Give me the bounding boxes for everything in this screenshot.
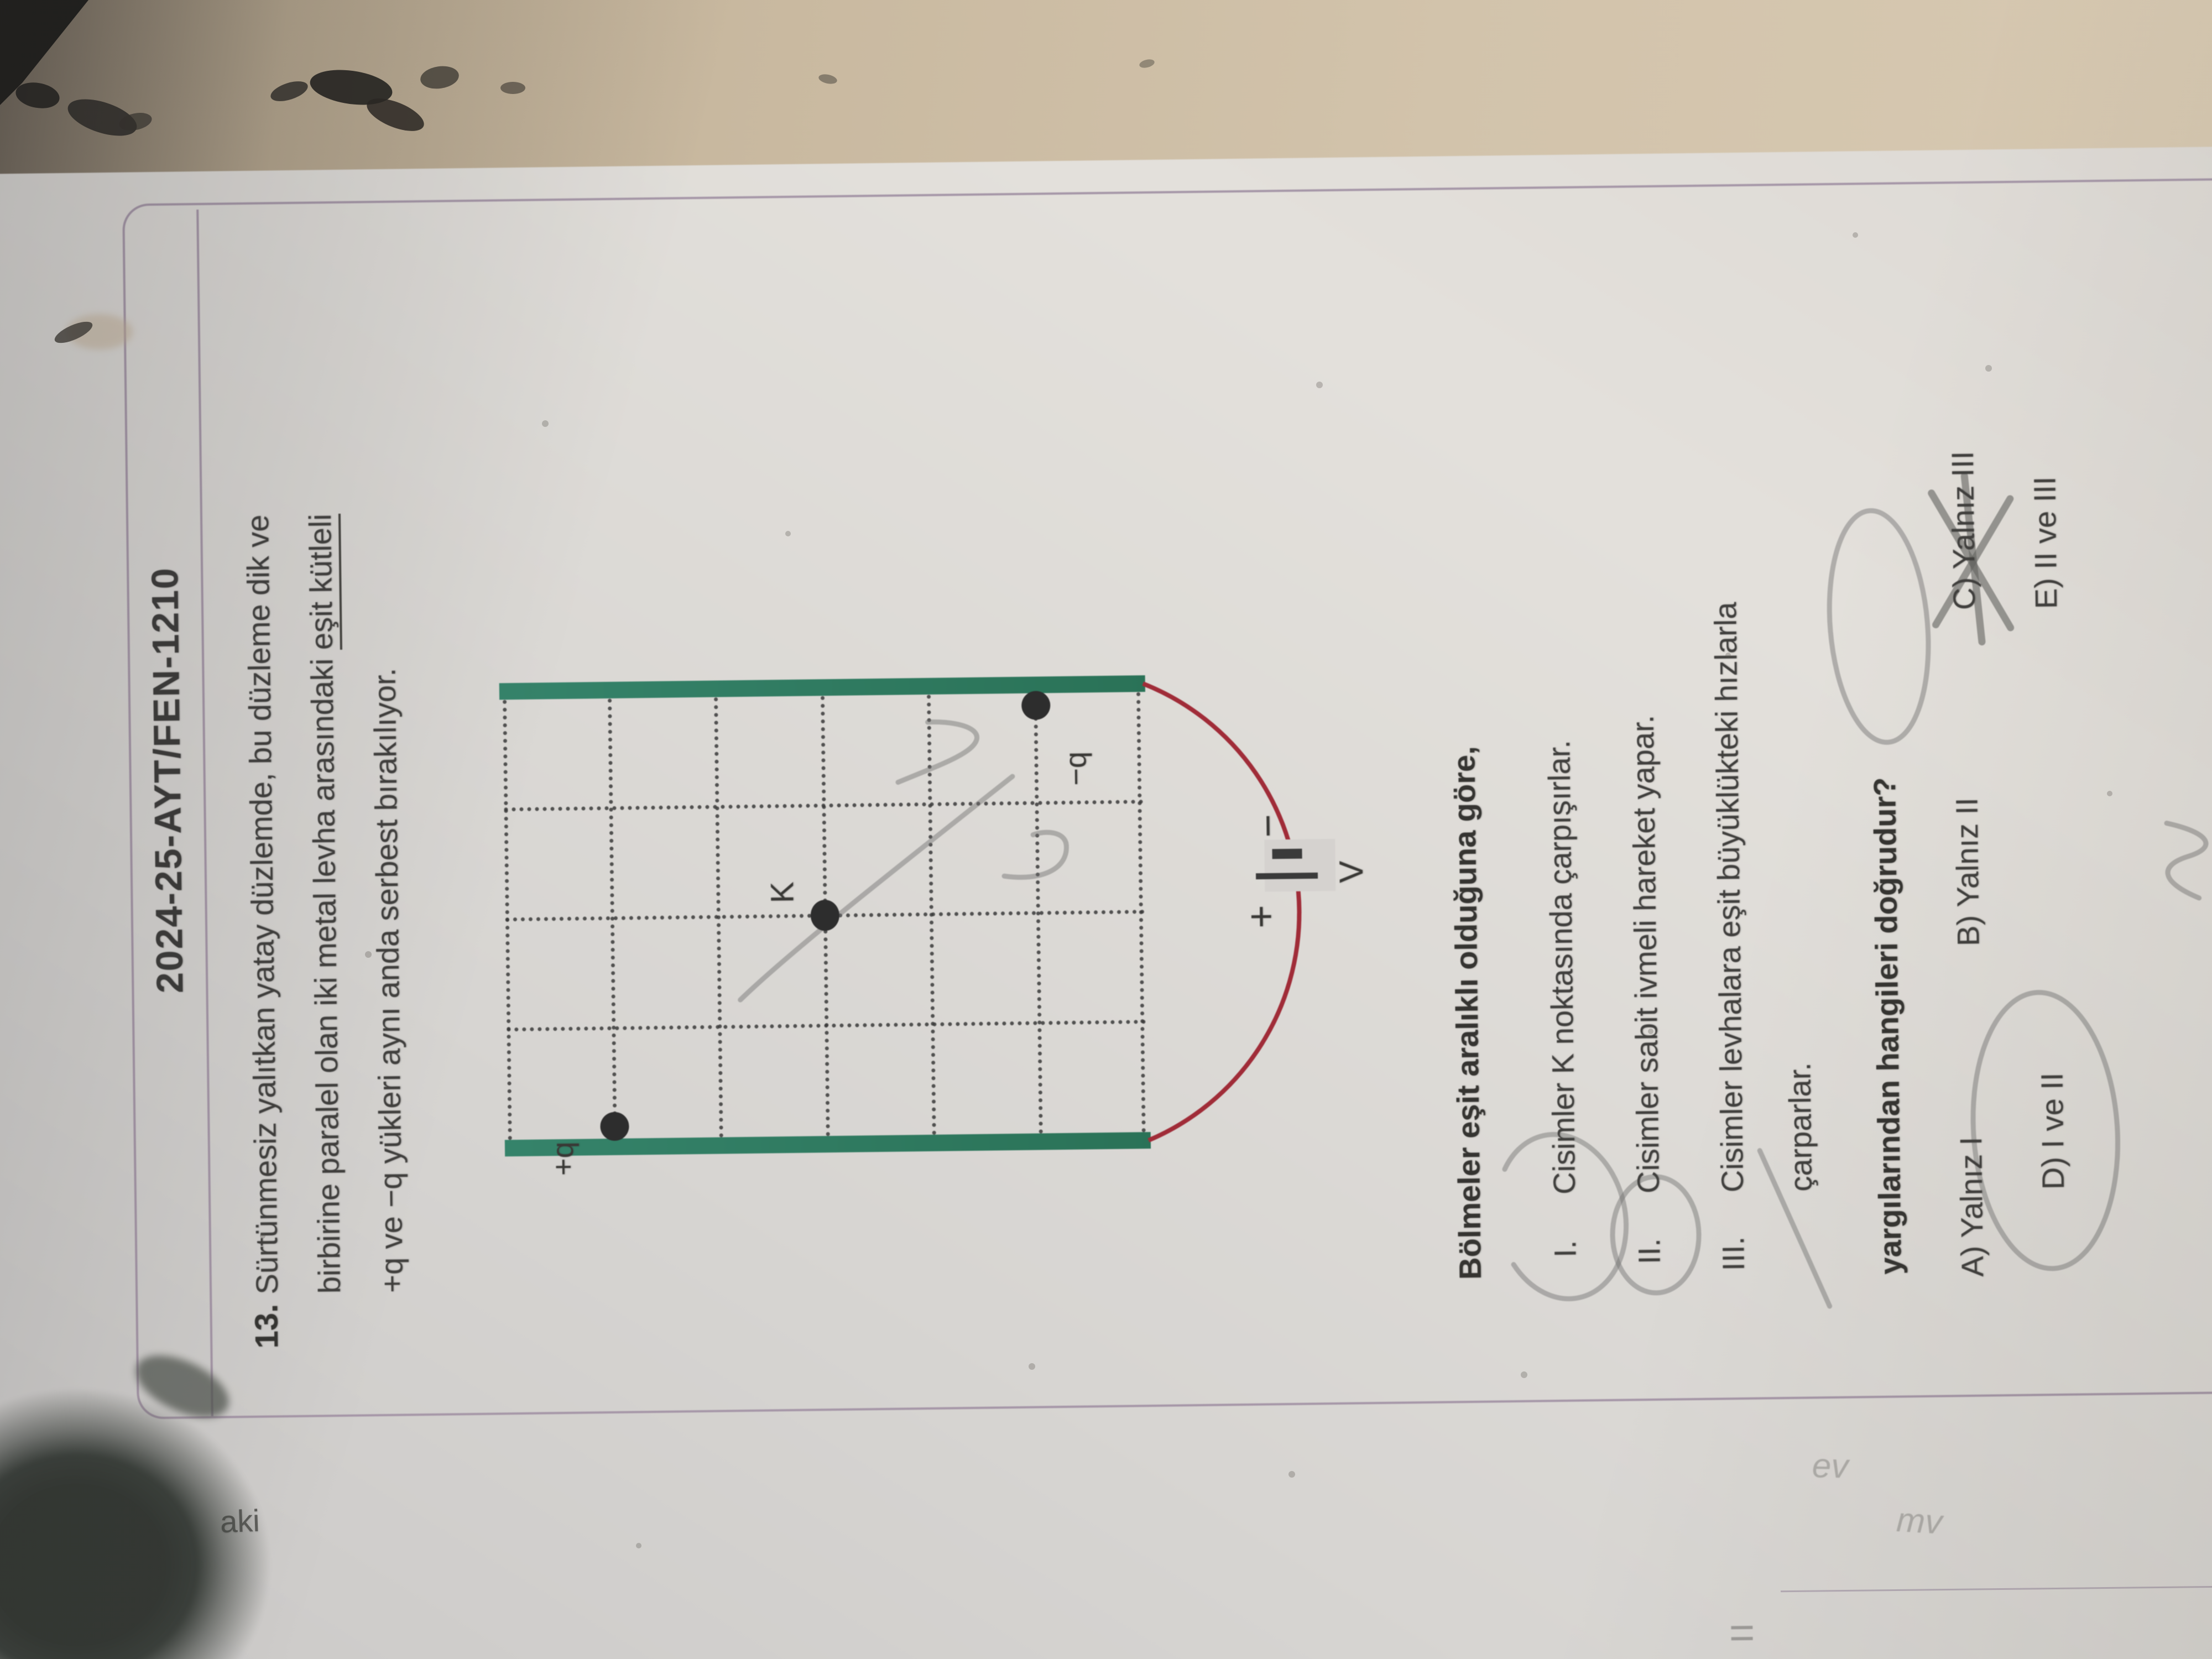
item-3-num: III.	[1715, 1237, 1751, 1271]
item-2-text: Cisimler sabit ivmeli hareket yapar.	[1625, 715, 1667, 1194]
option-d: D) I ve II	[2034, 1072, 2072, 1190]
negative-charge-label: −q	[1058, 752, 1093, 786]
item-1-text: Cisimler K noktasında çarpışırlar.	[1541, 740, 1582, 1194]
item-1-num: I.	[1547, 1240, 1583, 1258]
pencil-hook-scribble	[1004, 832, 1067, 878]
battery-minus-label: −	[1245, 814, 1291, 838]
wire-gap	[1264, 839, 1335, 892]
option-b: B) Yalnız II	[1948, 797, 1986, 946]
debris-speck	[500, 82, 525, 94]
item-3-text: Cisimler levhalara eşit büyüklükteki hız…	[1707, 602, 1750, 1192]
option-a: A) Yalnız I	[1953, 1136, 1990, 1277]
handwriting-mv: mv	[1896, 1500, 1944, 1542]
battery-short-bar-icon	[1272, 854, 1302, 854]
item-3-text-cont: çarparlar.	[1781, 1062, 1819, 1192]
point-k-label: K	[764, 881, 801, 904]
battery-plus-label: +	[1239, 905, 1285, 928]
handwriting-equals: =	[1728, 1607, 1755, 1658]
point-k-dot	[811, 900, 840, 931]
stem-intro: Bölmeler eşit aralıklı olduğuna göre,	[1446, 746, 1488, 1280]
photographed-exam-page: 2024-25-AYT/FEN-1210 13. Sürtünmesiz yal…	[0, 0, 2212, 1659]
stem-closing: yargılarından hangileri doğrudur?	[1866, 777, 1908, 1275]
pencil-squiggle-bottom	[2167, 823, 2206, 899]
pencil-oval-dogrudur	[1821, 507, 1937, 746]
positive-charge-label: +q	[546, 1141, 581, 1176]
option-e: E) II ve III	[2026, 476, 2064, 609]
exam-page: 2024-25-AYT/FEN-1210 13. Sürtünmesiz yal…	[0, 0, 2212, 1659]
item-2-num: II.	[1631, 1238, 1667, 1264]
pencil-check-scribble	[898, 722, 978, 782]
battery-voltage-label: V	[1332, 860, 1370, 883]
option-c: C) Yalnız III	[1944, 451, 1983, 610]
battery-long-bar-icon	[1256, 875, 1318, 876]
handwriting-ev: ev	[1812, 1446, 1849, 1486]
